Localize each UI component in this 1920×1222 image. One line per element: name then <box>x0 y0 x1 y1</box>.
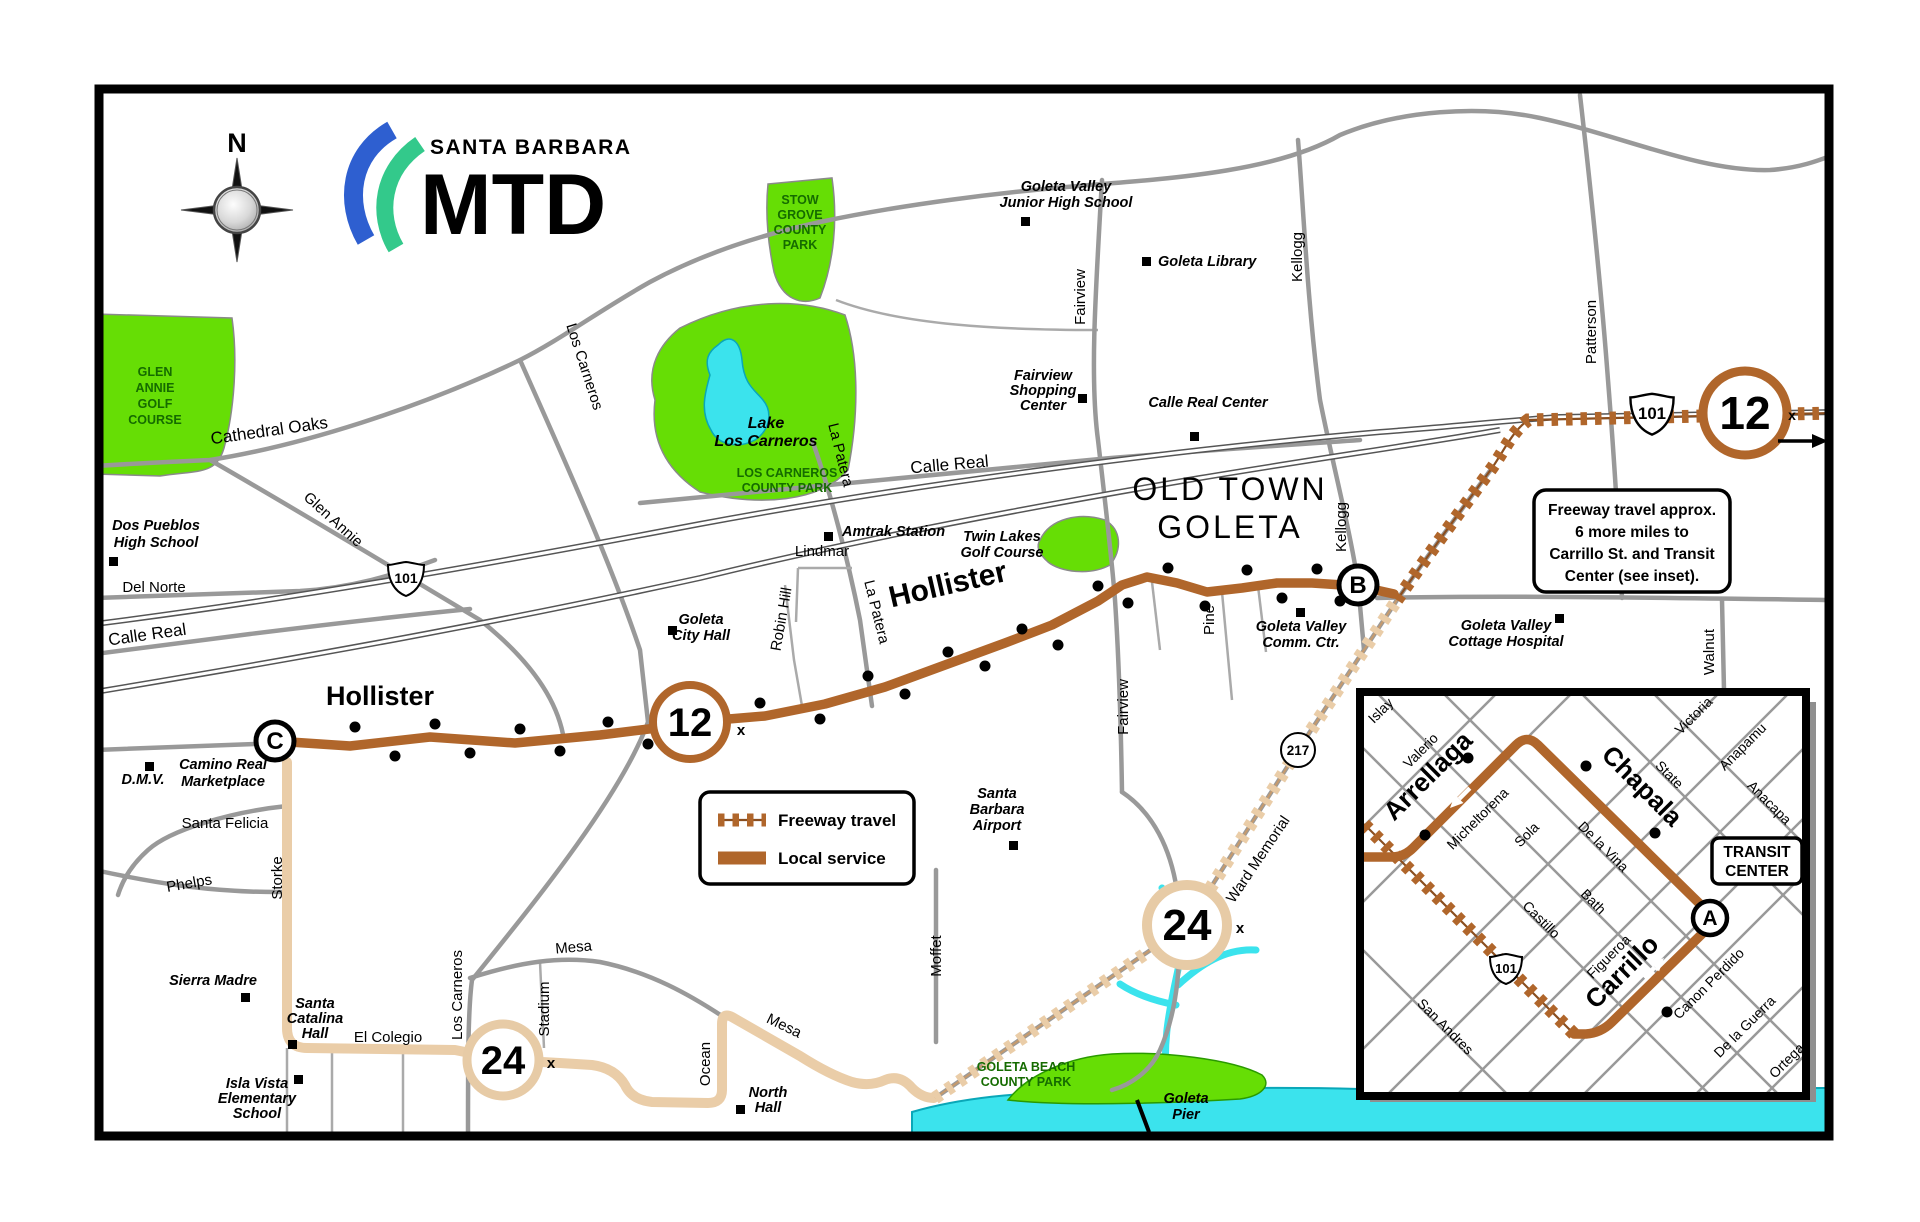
label-gv-hospital: Goleta Valley <box>1461 618 1552 634</box>
label-hollister-west: Hollister <box>326 681 435 711</box>
label-amtrak: Amtrak Station <box>841 524 945 540</box>
logo-agency: SANTA BARBARA <box>430 136 632 159</box>
label-stow-grove: COUNTY <box>774 223 827 237</box>
label-stow-grove: STOW <box>781 193 818 207</box>
stop-c-badge: C <box>256 722 294 760</box>
label-fairview-s: Fairview <box>1115 679 1132 735</box>
mtd-route-map: Cathedral Oaks Glen Annie Los Carneros D… <box>0 0 1920 1222</box>
freeway-info-box: Freeway travel approx. 6 more miles to C… <box>1534 490 1730 592</box>
svg-text:101: 101 <box>1638 404 1666 423</box>
logo-swoosh-green <box>385 144 420 248</box>
label-glen-annie-park: GLEN <box>138 365 173 379</box>
label-kellogg-s: Kellogg <box>1333 502 1350 552</box>
road-pine <box>1222 592 1232 700</box>
road-mesa <box>470 960 722 1016</box>
label-los-carneros-park: COUNTY PARK <box>742 481 833 495</box>
road-north-boundary-east <box>836 300 1098 330</box>
label-santa-catalina: Hall <box>302 1026 330 1042</box>
road-oldtown-stub1 <box>1152 582 1160 650</box>
timepoint-x-freeway12: x <box>1788 407 1796 423</box>
road-walnut <box>1722 600 1724 690</box>
label-stow-grove: GROVE <box>777 208 822 222</box>
svg-text:TRANSIT: TRANSIT <box>1723 844 1791 861</box>
label-glen-annie-park: GOLF <box>138 397 173 411</box>
svg-text:101: 101 <box>394 570 418 586</box>
route-12-local <box>275 577 1394 746</box>
label-pine: Pine <box>1201 605 1218 635</box>
label-glen-annie-park: COURSE <box>128 413 181 427</box>
svg-text:B: B <box>1349 572 1366 599</box>
label-goleta-pier: Pier <box>1172 1107 1201 1123</box>
label-airport: Airport <box>972 818 1023 834</box>
svg-text:217: 217 <box>1287 743 1310 758</box>
label-camino-real: Camino Real <box>179 757 268 773</box>
route-24-badge-ward: 24 <box>1147 885 1227 965</box>
label-fairview-sc: Center <box>1020 398 1067 414</box>
label-isla-vista: Elementary <box>218 1091 297 1107</box>
label-goleta-beach-park: GOLETA BEACH <box>977 1060 1076 1074</box>
label-calle-real-c: Calle Real <box>910 452 990 478</box>
label-fairview-sc: Shopping <box>1010 383 1077 399</box>
timepoint-x-hollister: x <box>737 722 746 739</box>
label-lake: Los Carneros <box>714 433 817 450</box>
label-goleta-library: Goleta Library <box>1158 254 1257 270</box>
svg-text:12: 12 <box>668 701 713 745</box>
label-santa-felicia: Santa Felicia <box>182 815 269 832</box>
label-stow-grove: PARK <box>783 238 818 252</box>
label-lindmar: Lindmar <box>795 543 849 560</box>
svg-text:CENTER: CENTER <box>1725 863 1789 880</box>
label-gv-jhs: Junior High School <box>1000 195 1134 211</box>
compass-rose-icon <box>181 158 293 262</box>
transit-center-box: TRANSIT CENTER <box>1712 838 1802 884</box>
route-12-badge-hollister: 12 <box>653 685 727 759</box>
label-camino-real: Marketplace <box>181 774 265 790</box>
label-dos-pueblos: High School <box>114 535 200 551</box>
direction-arrow-east <box>1778 434 1828 448</box>
label-el-colegio: El Colegio <box>354 1029 422 1046</box>
label-storke: Storke <box>269 856 286 899</box>
label-city-hall: Goleta <box>678 612 723 628</box>
label-calle-real-center: Calle Real Center <box>1148 395 1269 411</box>
label-isla-vista: Isla Vista <box>226 1076 288 1092</box>
label-airport: Santa <box>977 786 1017 802</box>
label-old-town: OLD TOWN <box>1132 471 1327 507</box>
label-ward-memorial: Ward Memorial <box>1223 813 1294 906</box>
label-gv-comm: Goleta Valley <box>1256 619 1347 635</box>
label-del-norte: Del Norte <box>122 579 185 596</box>
svg-text:101: 101 <box>1495 961 1517 976</box>
route-24-badge-elcolegio: 24 <box>467 1024 539 1096</box>
label-gv-comm: Comm. Ctr. <box>1262 635 1339 651</box>
svg-text:Freeway travel approx.: Freeway travel approx. <box>1548 502 1716 519</box>
label-goleta-beach-park: COUNTY PARK <box>981 1075 1072 1089</box>
compass-north-label: N <box>227 128 247 158</box>
label-lake: Lake <box>748 415 785 432</box>
label-phelps: Phelps <box>165 871 213 896</box>
label-moffet: Moffet <box>928 934 945 976</box>
logo-name: MTD <box>420 157 606 253</box>
stop-a-badge: A <box>1693 901 1727 935</box>
road-hollister-east <box>1377 597 1833 600</box>
us101-shield-west: 101 <box>388 562 424 596</box>
label-fairview-sc: Fairview <box>1014 368 1074 384</box>
glen-annie-golf-course-area <box>96 314 235 476</box>
label-kellogg-n: Kellogg <box>1289 232 1306 282</box>
svg-text:Carrillo St. and Transit: Carrillo St. and Transit <box>1549 546 1714 563</box>
label-sierra-madre: Sierra Madre <box>169 973 257 989</box>
stop-b-badge: B <box>1339 566 1377 604</box>
label-los-carneros-park: LOS CARNEROS <box>737 466 838 480</box>
route-12-badge-freeway: 12 <box>1703 371 1787 455</box>
us101-shield-east: 101 <box>1630 394 1673 435</box>
label-fairview-n: Fairview <box>1072 269 1089 325</box>
label-isla-vista: School <box>233 1106 282 1122</box>
label-north-hall: Hall <box>755 1100 783 1116</box>
label-twin-lakes: Golf Course <box>961 545 1044 561</box>
label-north-hall: North <box>749 1085 788 1101</box>
label-city-hall: City Hall <box>672 628 731 644</box>
svg-text:6 more miles to: 6 more miles to <box>1575 524 1689 541</box>
svg-text:C: C <box>266 728 283 755</box>
road-lindmar <box>785 568 852 706</box>
svg-text:24: 24 <box>1163 901 1212 950</box>
label-ocean: Ocean <box>697 1042 714 1086</box>
label-mesa-w: Mesa <box>555 937 594 957</box>
label-los-carneros-s: Los Carneros <box>449 950 466 1040</box>
timepoint-x-24a: x <box>547 1055 556 1072</box>
svg-text:24: 24 <box>481 1039 526 1083</box>
label-los-carneros-n: Los Carneros <box>562 321 606 412</box>
label-goleta-pier: Goleta <box>1163 1091 1208 1107</box>
label-stadium: Stadium <box>536 981 553 1036</box>
label-gv-jhs: Goleta Valley <box>1021 179 1112 195</box>
label-patterson: Patterson <box>1583 300 1600 364</box>
label-santa-catalina: Catalina <box>287 1011 343 1027</box>
label-santa-catalina: Santa <box>295 996 335 1012</box>
legend-freeway-label: Freeway travel <box>778 811 896 830</box>
label-airport: Barbara <box>970 802 1025 818</box>
road-storke-south <box>287 1048 403 1136</box>
svg-text:Center (see inset).: Center (see inset). <box>1565 568 1699 585</box>
mtd-logo: SANTA BARBARA MTD <box>353 130 631 253</box>
svg-text:12: 12 <box>1719 387 1770 439</box>
label-glen-annie-park: ANNIE <box>136 381 175 395</box>
label-twin-lakes: Twin Lakes <box>963 529 1041 545</box>
label-hollister-east: Hollister <box>886 555 1011 614</box>
legend: Freeway travel Local service <box>700 792 914 884</box>
timepoint-x-24b: x <box>1236 920 1245 937</box>
road-hollister-west-stub <box>95 744 255 750</box>
label-gv-hospital: Cottage Hospital <box>1448 634 1564 650</box>
label-dmv: D.M.V. <box>122 772 165 788</box>
label-walnut: Walnut <box>1701 628 1718 675</box>
label-dos-pueblos: Dos Pueblos <box>112 518 200 534</box>
label-goleta: GOLETA <box>1157 509 1302 545</box>
svg-text:A: A <box>1702 907 1717 930</box>
legend-local-label: Local service <box>778 849 886 868</box>
sr217-shield: 217 <box>1281 733 1315 767</box>
